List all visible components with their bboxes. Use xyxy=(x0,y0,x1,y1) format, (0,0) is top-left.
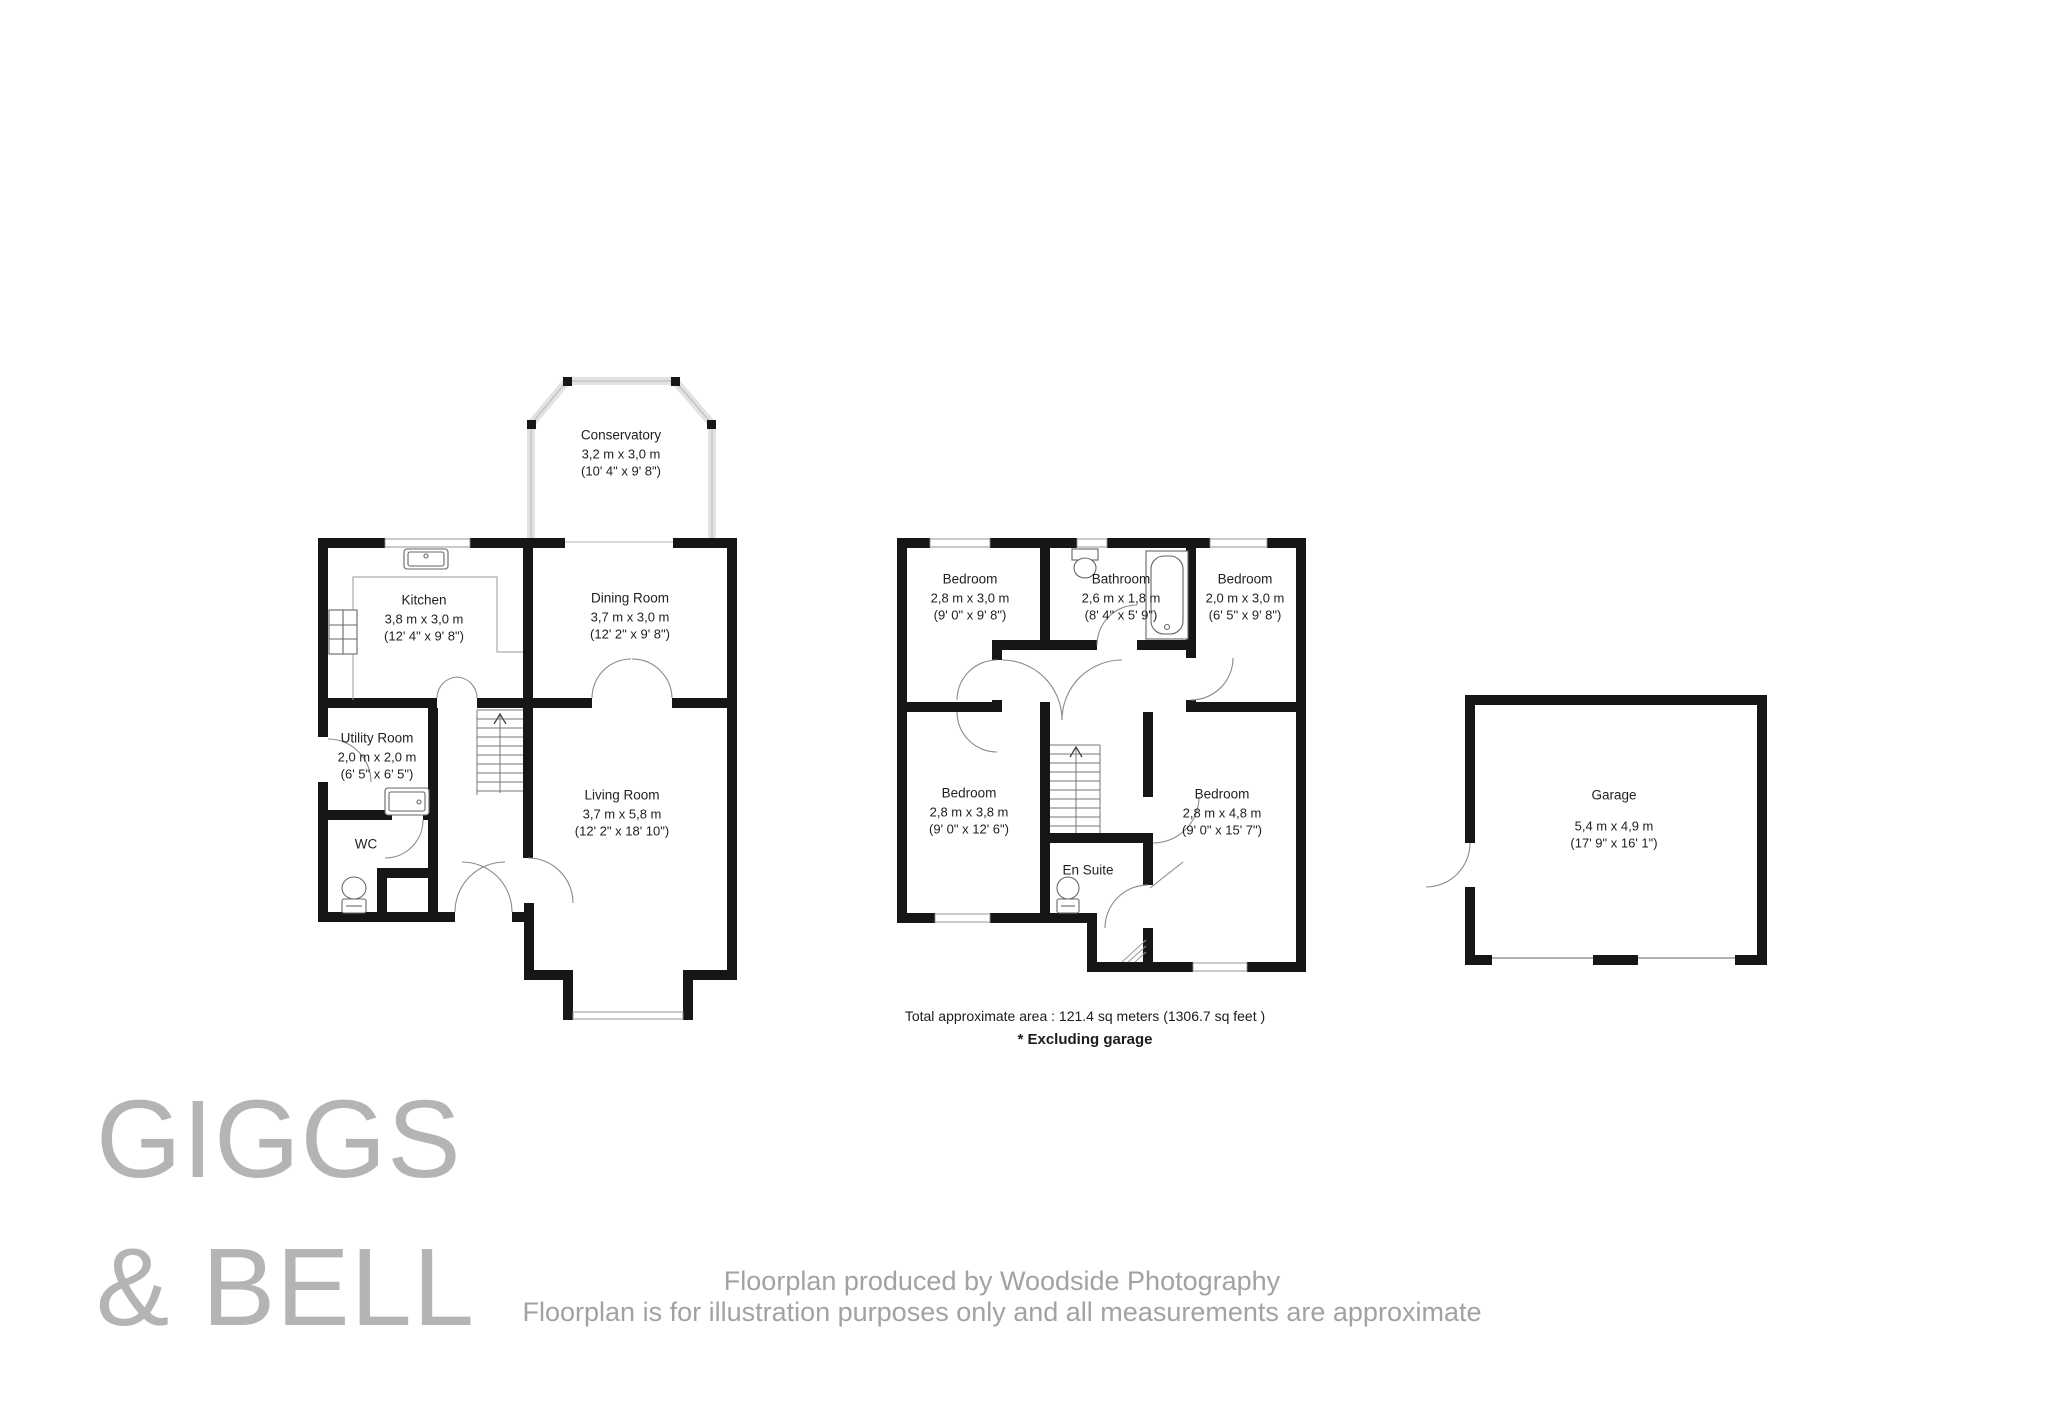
room-name: Conservatory xyxy=(581,427,661,444)
room-dim-metric: 2,0 m x 2,0 m xyxy=(338,749,417,766)
agency-logo: GIGGS & BELL xyxy=(96,1066,475,1362)
room-dim-imperial: (9' 0" x 9' 8") xyxy=(931,607,1010,624)
footer-disclaimer: Floorplan produced by Woodside Photograp… xyxy=(523,1266,1482,1328)
excluding-garage-note: * Excluding garage xyxy=(905,1031,1265,1048)
room-dim-metric: 3,8 m x 3,0 m xyxy=(384,611,464,628)
footer-line2: Floorplan is for illustration purposes o… xyxy=(523,1297,1482,1328)
garage-side-door-arc xyxy=(1426,843,1470,887)
room-label-living-room: Living Room 3,7 m x 5,8 m (12' 2" x 18' … xyxy=(575,787,669,840)
area-summary: Total approximate area : 121.4 sq meters… xyxy=(905,1008,1265,1048)
total-area-text: Total approximate area : 121.4 sq meters… xyxy=(905,1008,1265,1024)
room-label-en-suite: En Suite xyxy=(1062,862,1113,881)
room-label-bedroom-back-left: Bedroom 2,8 m x 3,8 m (9' 0" x 12' 6") xyxy=(929,785,1009,838)
room-label-utility-room: Utility Room 2,0 m x 2,0 m (6' 5" x 6' 5… xyxy=(338,730,417,783)
room-name: Bedroom xyxy=(929,785,1009,802)
room-label-dining-room: Dining Room 3,7 m x 3,0 m (12' 2" x 9' 8… xyxy=(590,590,670,643)
agency-logo-line2: & BELL xyxy=(96,1214,475,1362)
room-name: Bedroom xyxy=(1182,786,1262,803)
cooker-icon xyxy=(329,610,357,654)
room-dim-imperial: (12' 4" x 9' 8") xyxy=(384,628,464,645)
room-label-bathroom: Bathroom 2,6 m x 1,8 m (8' 4" x 5' 9") xyxy=(1082,571,1161,624)
room-dim-metric: 3,7 m x 3,0 m xyxy=(590,609,670,626)
kitchen-sink-icon xyxy=(404,549,448,569)
room-label-garage: Garage 5,4 m x 4,9 m (17' 9" x 16' 1") xyxy=(1570,787,1657,852)
room-dim-metric: 2,8 m x 4,8 m xyxy=(1182,805,1262,822)
floorplan-canvas: Conservatory 3,2 m x 3,0 m (10' 4" x 9' … xyxy=(0,0,2048,1402)
room-label-conservatory: Conservatory 3,2 m x 3,0 m (10' 4" x 9' … xyxy=(581,427,661,480)
room-dim-metric: 2,0 m x 3,0 m xyxy=(1206,590,1285,607)
room-name: Bedroom xyxy=(931,571,1010,588)
room-dim-imperial: (6' 5" x 6' 5") xyxy=(338,766,417,783)
stairs-first-floor xyxy=(1050,745,1100,833)
room-name: Dining Room xyxy=(590,590,670,607)
room-name: Utility Room xyxy=(338,730,417,747)
room-label-wc: WC xyxy=(355,836,378,855)
room-dim-metric: 2,6 m x 1,8 m xyxy=(1082,590,1161,607)
room-label-bedroom-back-right: Bedroom 2,8 m x 4,8 m (9' 0" x 15' 7") xyxy=(1182,786,1262,839)
room-dim-imperial: (9' 0" x 12' 6") xyxy=(929,821,1009,838)
room-name: Kitchen xyxy=(384,592,464,609)
ensuite-shower-icon xyxy=(1122,940,1146,962)
stairs-ground-floor xyxy=(477,710,523,795)
room-name: Garage xyxy=(1570,787,1657,804)
room-dim-imperial: (10' 4" x 9' 8") xyxy=(581,463,661,480)
room-name: Bathroom xyxy=(1082,571,1161,588)
room-dim-imperial: (12' 2" x 18' 10") xyxy=(575,823,669,840)
agency-logo-line1: GIGGS xyxy=(96,1066,475,1214)
wc-toilet-icon xyxy=(342,877,366,913)
room-label-bedroom-front-left: Bedroom 2,8 m x 3,0 m (9' 0" x 9' 8") xyxy=(931,571,1010,624)
room-name: Bedroom xyxy=(1206,571,1285,588)
room-dim-metric: 3,2 m x 3,0 m xyxy=(581,446,661,463)
room-name: En Suite xyxy=(1062,862,1113,879)
ground-floor-plan xyxy=(318,377,737,1020)
room-dim-imperial: (12' 2" x 9' 8") xyxy=(590,626,670,643)
room-dim-imperial: (17' 9" x 16' 1") xyxy=(1570,835,1657,852)
room-dim-metric: 3,7 m x 5,8 m xyxy=(575,806,669,823)
ensuite-toilet-icon xyxy=(1057,877,1079,913)
room-label-kitchen: Kitchen 3,8 m x 3,0 m (12' 4" x 9' 8") xyxy=(384,592,464,645)
room-dim-imperial: (8' 4" x 5' 9") xyxy=(1082,607,1161,624)
room-label-bedroom-front-right: Bedroom 2,0 m x 3,0 m (6' 5" x 9' 8") xyxy=(1206,571,1285,624)
room-dim-metric: 2,8 m x 3,0 m xyxy=(931,590,1010,607)
room-name: Living Room xyxy=(575,787,669,804)
room-dim-imperial: (9' 0" x 15' 7") xyxy=(1182,822,1262,839)
room-dim-metric: 2,8 m x 3,8 m xyxy=(929,804,1009,821)
footer-line1: Floorplan produced by Woodside Photograp… xyxy=(523,1266,1482,1297)
room-dim-metric: 5,4 m x 4,9 m xyxy=(1570,818,1657,835)
utility-sink-icon xyxy=(385,788,429,815)
room-name: WC xyxy=(355,836,378,853)
room-dim-imperial: (6' 5" x 9' 8") xyxy=(1206,607,1285,624)
